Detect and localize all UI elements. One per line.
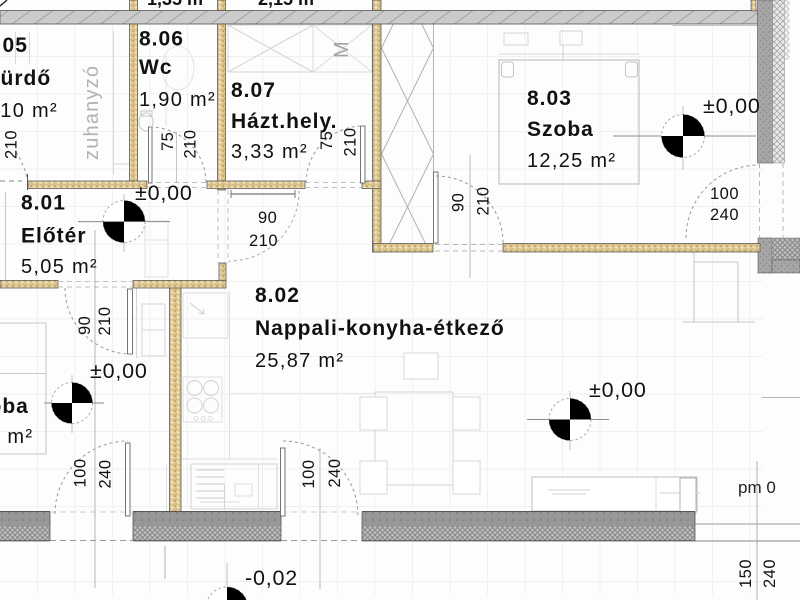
svg-text:240: 240 xyxy=(710,206,739,224)
svg-text:90: 90 xyxy=(450,193,468,212)
svg-text:1,90 m²: 1,90 m² xyxy=(139,89,216,111)
svg-text:5,05 m²: 5,05 m² xyxy=(21,256,98,278)
svg-text:Wc: Wc xyxy=(139,56,173,79)
svg-text:240: 240 xyxy=(97,459,115,488)
svg-text:210: 210 xyxy=(3,130,21,159)
svg-text:240: 240 xyxy=(326,458,344,487)
svg-text:±0,00: ±0,00 xyxy=(589,378,647,402)
svg-text:100: 100 xyxy=(72,458,90,487)
svg-text:±0,00: ±0,00 xyxy=(135,181,193,205)
svg-text:100: 100 xyxy=(710,185,739,203)
svg-text:8.03: 8.03 xyxy=(527,87,572,110)
svg-text:90: 90 xyxy=(76,316,94,335)
svg-text:pm 0: pm 0 xyxy=(738,478,776,497)
svg-text:-0,02: -0,02 xyxy=(245,566,298,590)
svg-text:zuhanyzó: zuhanyzó xyxy=(81,65,103,160)
svg-text:150: 150 xyxy=(737,559,755,588)
svg-text:12,25 m²: 12,25 m² xyxy=(527,150,616,172)
svg-text:210: 210 xyxy=(249,232,278,250)
svg-text:210: 210 xyxy=(342,127,360,156)
svg-text:fürdő: fürdő xyxy=(0,67,51,90)
svg-text:240: 240 xyxy=(761,559,779,588)
svg-text:8.01: 8.01 xyxy=(21,192,66,215)
svg-text:8.07: 8.07 xyxy=(231,79,276,102)
svg-text:Nappali-konyha-étkező: Nappali-konyha-étkező xyxy=(255,317,505,340)
svg-text:M: M xyxy=(331,41,353,58)
svg-text:100: 100 xyxy=(300,459,318,488)
svg-text:±0,00: ±0,00 xyxy=(703,94,761,118)
svg-text:Szoba: Szoba xyxy=(0,395,29,418)
svg-text:12,75 m²: 12,75 m² xyxy=(0,426,33,448)
svg-text:8.06: 8.06 xyxy=(139,28,184,51)
svg-text:25,87 m²: 25,87 m² xyxy=(255,350,344,372)
svg-text:1,35 m: 1,35 m xyxy=(147,0,203,9)
svg-text:75: 75 xyxy=(318,131,336,150)
svg-text:2,15 m: 2,15 m xyxy=(258,0,314,9)
svg-text:Házt.hely.: Házt.hely. xyxy=(231,110,337,133)
svg-text:8.05: 8.05 xyxy=(0,34,28,57)
svg-text:210: 210 xyxy=(96,306,114,335)
svg-text:Szoba: Szoba xyxy=(527,118,594,141)
svg-text:±0,00: ±0,00 xyxy=(90,359,148,383)
svg-text:210: 210 xyxy=(182,129,200,158)
svg-text:75: 75 xyxy=(159,132,177,151)
svg-text:90: 90 xyxy=(258,209,277,227)
svg-text:4,10 m²: 4,10 m² xyxy=(0,100,58,122)
svg-text:Előtér: Előtér xyxy=(21,225,87,248)
svg-text:210: 210 xyxy=(475,186,493,215)
svg-text:3,33 m²: 3,33 m² xyxy=(231,141,308,163)
svg-text:8.02: 8.02 xyxy=(255,284,300,307)
